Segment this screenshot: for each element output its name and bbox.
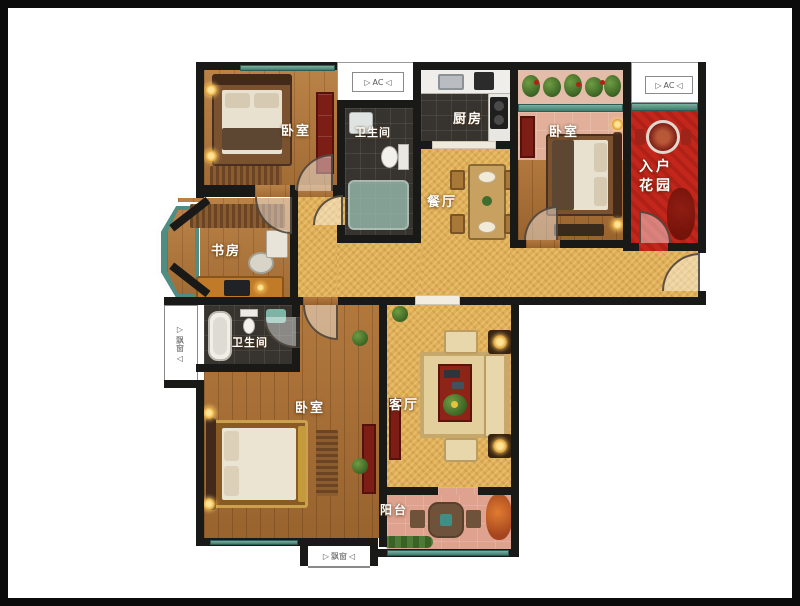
- nightstand-lamp: [203, 498, 215, 510]
- bed-headboard: [613, 132, 622, 218]
- desk-lamp: [256, 283, 265, 292]
- toilet-bowl: [381, 146, 398, 168]
- room-label-living-room: 客厅: [372, 394, 436, 413]
- wall: [460, 297, 706, 305]
- living-entry-threshold: [415, 295, 460, 305]
- balcony-opening: [438, 487, 478, 495]
- rug: [316, 430, 338, 496]
- shower-area: [348, 180, 409, 230]
- door-threshold: [255, 185, 290, 197]
- wall: [560, 240, 631, 248]
- toilet-tank: [398, 144, 409, 170]
- toilet-tank: [240, 309, 258, 317]
- wall: [413, 62, 421, 243]
- bed-pillow: [225, 93, 250, 108]
- flower-bush: [486, 494, 512, 540]
- floor-plan: ▷AC◁ ▷AC◁ ▷飘窗◁ ▷飘窗◁ 卧室 卫生间 厨房 卧室 入户 花园 餐…: [0, 0, 800, 606]
- door-threshold: [303, 297, 338, 305]
- shrub: [383, 536, 433, 548]
- ac-marker-right: ▷AC◁: [645, 76, 693, 94]
- nightstand-lamp: [612, 119, 623, 130]
- wall: [292, 305, 300, 317]
- wall-bay-box-side: [370, 538, 378, 566]
- wall: [421, 62, 631, 70]
- dining-chair: [450, 170, 465, 190]
- planter-flower: [534, 80, 539, 85]
- dining-chair: [450, 214, 465, 234]
- nightstand-lamp: [205, 150, 217, 162]
- wall: [196, 364, 300, 372]
- sofa-back: [504, 354, 510, 438]
- wall: [623, 62, 631, 251]
- bed-pillow: [224, 431, 239, 461]
- bay-window-marker-left: ▷飘窗◁: [166, 308, 194, 380]
- balcony-table-top: [440, 514, 452, 526]
- wall: [421, 141, 432, 149]
- ac-marker-top: ▷AC◁: [352, 72, 404, 92]
- stool: [466, 510, 481, 528]
- bed-pillow: [594, 143, 607, 172]
- wall: [164, 380, 204, 388]
- wall: [478, 487, 519, 495]
- arrow-icon: ▷: [323, 552, 329, 561]
- laptop: [224, 280, 250, 296]
- counter-appliance: [474, 72, 494, 90]
- wall: [337, 100, 421, 108]
- entry-garden-label-line2: 花园: [628, 177, 684, 196]
- arrow-icon: ◁: [676, 81, 682, 90]
- wall: [387, 487, 438, 495]
- bed-headboard: [212, 74, 292, 85]
- room-label-dining: 餐厅: [410, 191, 474, 210]
- table-item: [452, 382, 464, 389]
- dresser: [554, 224, 604, 236]
- planter-plant: [522, 75, 540, 97]
- bed-footboard: [298, 426, 306, 502]
- arrow-icon: ▷: [364, 78, 370, 87]
- room-label-bedroom-top-left: 卧室: [264, 120, 328, 139]
- plant: [352, 458, 368, 474]
- bay-window-label: 飘窗: [331, 551, 347, 562]
- bay-window-label: 飘窗: [175, 336, 186, 352]
- floor-lamp: [493, 439, 507, 453]
- entry-garden-window: [631, 103, 698, 111]
- arrow-icon: ▷: [655, 81, 661, 90]
- ac-label: AC: [664, 81, 675, 90]
- flower-accent: [451, 401, 458, 408]
- garden-chair: [681, 129, 691, 145]
- wall: [518, 240, 526, 248]
- wall: [164, 297, 303, 305]
- room-label-balcony: 阳台: [362, 501, 426, 518]
- wall: [631, 243, 639, 251]
- sofa-chair: [444, 330, 478, 354]
- window: [210, 540, 298, 545]
- kitchen-counter: [421, 70, 510, 94]
- plant: [392, 306, 408, 322]
- room-label-entry-garden: 入户 花园: [628, 158, 684, 196]
- garden-round-table: [646, 120, 680, 154]
- table-item: [444, 370, 460, 378]
- wall-bay-box-side: [300, 538, 308, 566]
- planter-flower: [600, 80, 605, 85]
- room-label-bedroom-right: 卧室: [532, 121, 596, 140]
- arrow-icon: ◁: [349, 552, 355, 561]
- room-label-kitchen: 厨房: [436, 108, 500, 127]
- ac-label: AC: [373, 78, 384, 87]
- entry-garden-label-line1: 入户: [628, 158, 684, 177]
- wall: [698, 62, 706, 253]
- bedroom-right-window: [518, 104, 623, 112]
- wall: [510, 62, 518, 248]
- plant: [352, 330, 368, 346]
- rug: [210, 166, 282, 186]
- room-label-bathroom-left: 卫生间: [218, 334, 282, 350]
- window: [240, 65, 335, 71]
- sofa-chair: [444, 438, 478, 462]
- room-label-bathroom-top: 卫生间: [341, 124, 405, 140]
- wall: [196, 62, 204, 198]
- planter-flower: [576, 82, 581, 87]
- arrow-icon: ◁: [176, 354, 185, 363]
- door-threshold: [639, 243, 668, 251]
- wall: [196, 185, 255, 197]
- floor-lamp: [493, 335, 507, 349]
- bed-pillow: [594, 177, 607, 206]
- bed-pillow: [224, 466, 239, 496]
- wall: [196, 384, 204, 546]
- wall: [337, 108, 345, 193]
- nightstand-lamp: [203, 407, 215, 419]
- garden-chair: [635, 129, 645, 145]
- wall: [338, 297, 415, 305]
- bed-headboard: [206, 418, 216, 510]
- nightstand-lamp: [205, 84, 217, 96]
- dinner-plate: [478, 171, 496, 183]
- bay-window-marker-bottom: ▷飘窗◁: [310, 548, 368, 564]
- arrow-icon: ▷: [176, 325, 185, 334]
- nightstand-lamp: [612, 219, 623, 230]
- table-centerpiece: [482, 196, 492, 206]
- planter-plant: [543, 77, 561, 97]
- dinner-plate: [478, 221, 496, 233]
- toilet-bowl: [243, 318, 255, 334]
- planter-plant: [604, 75, 621, 97]
- cabinet: [266, 230, 288, 258]
- window: [387, 550, 509, 556]
- corridor-floor: [337, 243, 421, 297]
- arrow-icon: ◁: [385, 78, 391, 87]
- bed-pillow: [254, 93, 279, 108]
- room-label-bedroom-bottom-left: 卧室: [278, 397, 342, 416]
- wall: [511, 305, 519, 557]
- kitchen-sink: [438, 74, 464, 90]
- door-threshold: [526, 240, 560, 248]
- wall: [337, 235, 421, 243]
- bed-blanket: [552, 140, 574, 210]
- room-label-study: 书房: [194, 240, 258, 259]
- kitchen-opening: [432, 141, 496, 149]
